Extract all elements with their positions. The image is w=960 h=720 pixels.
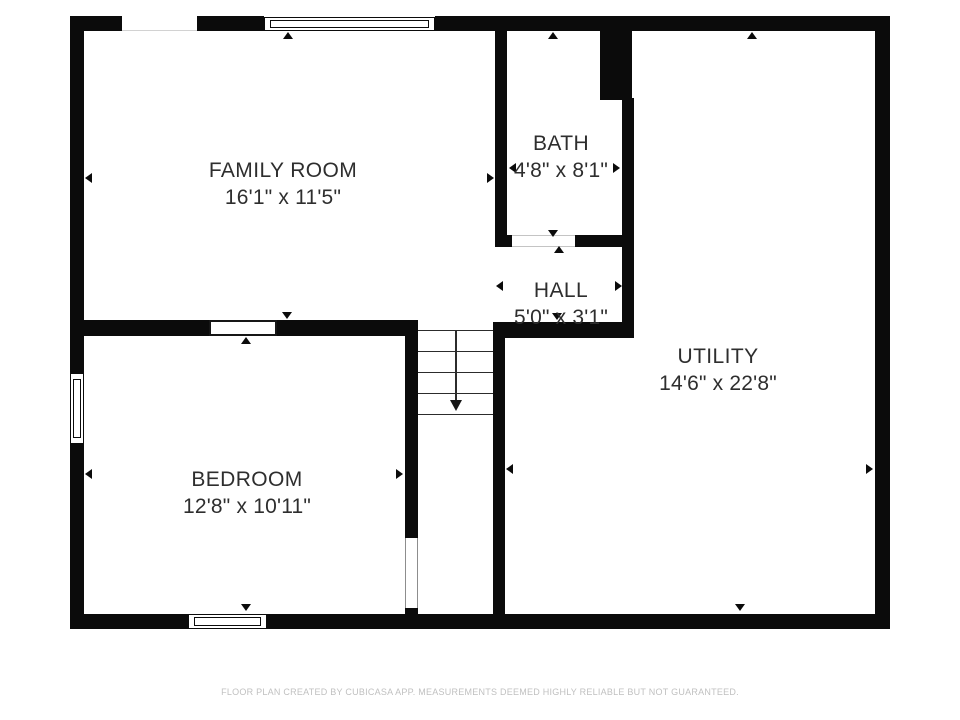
bath-measure-up-icon [548, 32, 558, 39]
footer-disclaimer: FLOOR PLAN CREATED BY CUBICASA APP. MEAS… [0, 687, 960, 697]
door-opening-bath [512, 235, 575, 247]
room-dimensions: 14'6" x 22'8" [659, 370, 777, 397]
wall-bottom-right [267, 614, 890, 629]
window-pane [73, 379, 81, 438]
room-name: BEDROOM [183, 466, 311, 493]
window-left [70, 373, 84, 444]
utility-measure-up-icon [747, 32, 757, 39]
room-dimensions: 4'8" x 8'1" [514, 157, 608, 184]
wall-right [875, 16, 890, 629]
stair-center-line [455, 331, 457, 403]
family-room-measure-down-icon [282, 312, 292, 319]
wall-utility-left [493, 322, 505, 629]
utility-measure-left-icon [506, 464, 513, 474]
room-name: UTILITY [659, 343, 777, 370]
bath-measure-down-icon [548, 230, 558, 237]
bath-measure-right-icon [613, 163, 620, 173]
utility-measure-right-icon [866, 464, 873, 474]
wall-bath-bottom-left [495, 235, 512, 247]
utility-measure-down-icon [735, 604, 745, 611]
wall-left-lower [70, 444, 84, 629]
floor-plan: FAMILY ROOM 16'1" x 11'5" BATH 4'8" x 8'… [0, 0, 960, 720]
bedroom-measure-right-icon [396, 469, 403, 479]
chimney-block [600, 27, 632, 100]
room-dimensions: 5'0" x 3'1" [514, 304, 608, 331]
wall-familyroom-bottom-left [82, 320, 209, 336]
hall-measure-right-icon [615, 281, 622, 291]
room-label-family-room: FAMILY ROOM 16'1" x 11'5" [209, 157, 357, 211]
room-dimensions: 16'1" x 11'5" [209, 184, 357, 211]
bedroom-measure-left-icon [85, 469, 92, 479]
hall-measure-left-icon [496, 281, 503, 291]
wall-bath-right [622, 98, 634, 338]
entry-opening-top [122, 16, 197, 31]
hall-measure-up-icon [554, 246, 564, 253]
room-name: HALL [514, 277, 608, 304]
room-name: BATH [514, 130, 608, 157]
family-room-measure-left-icon [85, 173, 92, 183]
door-opening-bedroom-top [209, 320, 277, 336]
bedroom-measure-up-icon [241, 337, 251, 344]
family-room-measure-up-icon [283, 32, 293, 39]
bedroom-measure-down-icon [241, 604, 251, 611]
wall-bedroom-right-lower [405, 608, 418, 629]
door-opening-bedroom-side [405, 538, 418, 608]
room-dimensions: 12'8" x 10'11" [183, 493, 311, 520]
wall-familyroom-bottom-right [277, 320, 418, 336]
room-label-utility: UTILITY 14'6" x 22'8" [659, 343, 777, 397]
room-name: FAMILY ROOM [209, 157, 357, 184]
wall-bedroom-right-upper [405, 320, 418, 538]
window-bottom [188, 614, 267, 629]
window-top [264, 17, 435, 31]
room-label-bath: BATH 4'8" x 8'1" [514, 130, 608, 184]
room-label-bedroom: BEDROOM 12'8" x 10'11" [183, 466, 311, 520]
wall-bath-left [495, 31, 507, 247]
window-pane [194, 617, 261, 626]
window-pane [270, 20, 429, 28]
family-room-measure-right-icon [487, 173, 494, 183]
room-label-hall: HALL 5'0" x 3'1" [514, 277, 608, 331]
wall-top-right [435, 16, 890, 31]
wall-bottom-left [70, 614, 188, 629]
wall-top-mid [197, 16, 264, 31]
stair-direction-arrow-icon [450, 400, 462, 411]
